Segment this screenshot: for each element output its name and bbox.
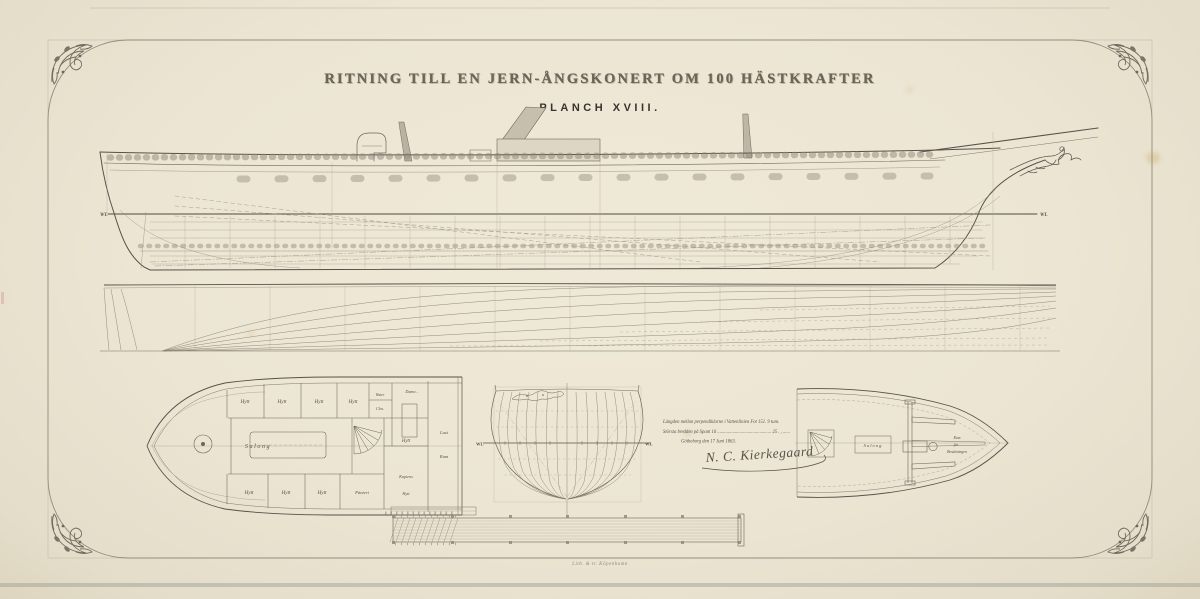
waterline-label-right: WL — [1040, 213, 1048, 218]
half-breadth-plan — [100, 284, 1060, 352]
svg-text:Hytt: Hytt — [317, 490, 327, 496]
hull-outline — [100, 152, 1045, 270]
svg-text:Rum: Rum — [953, 436, 961, 440]
waterline-label-left: WL — [100, 213, 108, 218]
svg-text:Water: Water — [376, 393, 385, 397]
svg-text:Clos.: Clos. — [376, 407, 384, 411]
body-plan: WL WL — [476, 383, 653, 516]
corner-ornament — [52, 45, 92, 85]
fore-salong-label: Salong — [864, 443, 883, 448]
svg-text:Hytt: Hytt — [281, 490, 291, 496]
svg-text:Hytt: Hytt — [244, 490, 254, 496]
border-frame — [48, 8, 1152, 558]
svg-text:Rum: Rum — [439, 454, 449, 459]
fore-deck-plan: Salong Rum för Besättningen — [795, 389, 1008, 498]
svg-text:Pänteri: Pänteri — [354, 490, 370, 495]
bodyplan-wl-right: WL — [645, 442, 653, 447]
bowsprit — [920, 128, 1098, 152]
corner-ornament — [52, 514, 92, 554]
svg-text:Hytt: Hytt — [277, 399, 287, 405]
svg-text:Hytt: Hytt — [314, 399, 324, 405]
svg-text:Last: Last — [439, 430, 449, 435]
windlass — [903, 400, 985, 485]
drawing-canvas: WL WL — [0, 0, 1200, 599]
svg-text:Hytt: Hytt — [348, 399, 358, 405]
svg-text:Kaptens: Kaptens — [398, 474, 413, 479]
note-length: Längden mellan perpendiklarne i Vattenli… — [662, 420, 779, 425]
svg-text:Salong: Salong — [245, 443, 271, 450]
fore-mast — [743, 114, 752, 158]
note-breadth: Största bredden på Spant 16 ............… — [663, 429, 790, 435]
corner-ornament — [1108, 45, 1148, 85]
signature: N. C. Kierkegaard — [704, 443, 813, 465]
svg-text:för: för — [954, 443, 959, 447]
svg-text:Dame...: Dame... — [404, 389, 418, 394]
bodyplan-wl-left: WL — [476, 442, 484, 447]
funnel — [502, 107, 546, 140]
svg-text:Besättningen: Besättningen — [947, 450, 967, 454]
svg-text:Hytt: Hytt — [401, 491, 410, 496]
sheer-plan: WL WL — [100, 107, 1098, 270]
svg-text:Hytt: Hytt — [240, 399, 250, 405]
svg-text:Hytt: Hytt — [401, 439, 411, 444]
crew-room-label: Rum för Besättningen — [947, 436, 967, 454]
figurehead — [1010, 147, 1081, 176]
scanned-plate: RITNING TILL EN JERN-ÅNGSKONERT OM 100 H… — [0, 0, 1200, 599]
corner-ornament — [1108, 514, 1148, 554]
notes-block: Längden mellan perpendiklarne i Vattenli… — [662, 420, 826, 471]
aft-deck-plan: Hytt Hytt Hytt Hytt Water Clos. Dame... … — [147, 377, 462, 515]
note-place-date: Götheborg den 17 Juni 1863. — [681, 440, 736, 445]
aft-plan-labels: Hytt Hytt Hytt Hytt Water Clos. Dame... … — [240, 389, 449, 496]
